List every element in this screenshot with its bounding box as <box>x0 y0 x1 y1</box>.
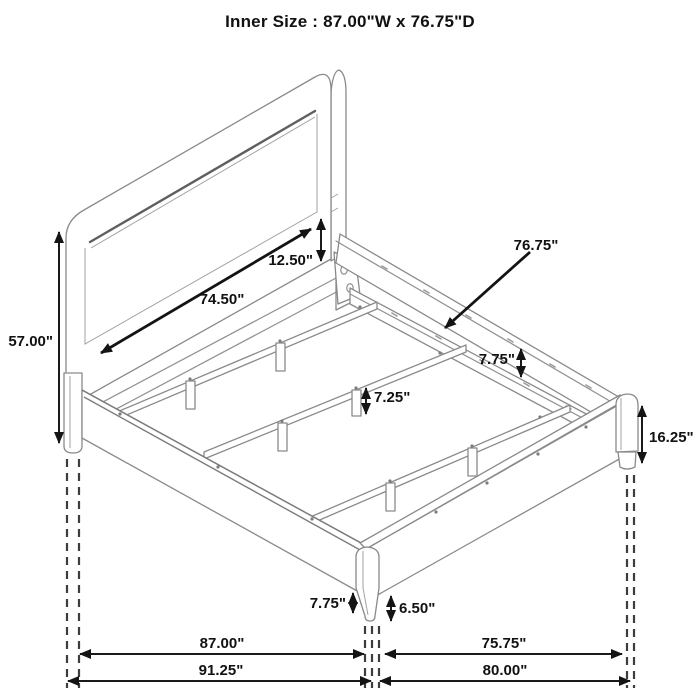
panel-drop-label: 12.50" <box>268 252 313 269</box>
headboard <box>64 70 360 453</box>
bed-frame-drawing <box>64 70 638 621</box>
foot-inner-width-label: 75.75" <box>482 635 527 652</box>
headboard-right-edge <box>331 70 346 261</box>
leg-height-label: 6.50" <box>399 600 435 617</box>
diagram-canvas: 57.00" 74.50" 12.50" 76.75" 7.75" 7.25" … <box>0 0 700 700</box>
center-leg-height-label: 7.25" <box>374 389 410 406</box>
center-leg <box>386 483 395 511</box>
headboard-height-label: 57.00" <box>8 333 53 350</box>
footboard-height-label: 16.25" <box>649 429 694 446</box>
front-corner-leg <box>356 547 379 621</box>
inner-depth-label: 76.75" <box>514 237 559 254</box>
center-leg <box>186 381 195 409</box>
bed-frame-dimension-diagram: 57.00" 74.50" 12.50" 76.75" 7.75" 7.25" … <box>0 0 700 700</box>
panel-width-label: 74.50" <box>200 291 245 308</box>
center-leg <box>276 343 285 371</box>
foot-overall-width-label: 80.00" <box>483 662 528 679</box>
center-leg <box>352 390 361 416</box>
headboard-left-post <box>64 373 82 453</box>
diagram-title: Inner Size : 87.00"W x 76.75"D <box>225 12 475 31</box>
inner-depth-leader-arrow <box>445 252 530 328</box>
foot-rail <box>360 395 630 597</box>
overall-width-label: 91.25" <box>199 662 244 679</box>
support-drop-label: 7.75" <box>479 351 515 368</box>
center-leg <box>278 423 287 451</box>
left-side-rail <box>82 390 372 597</box>
foot-right-corner-post <box>616 394 638 469</box>
rail-clearance-label: 7.75" <box>310 595 346 612</box>
inner-width-label: 87.00" <box>200 635 245 652</box>
center-leg <box>468 448 477 476</box>
